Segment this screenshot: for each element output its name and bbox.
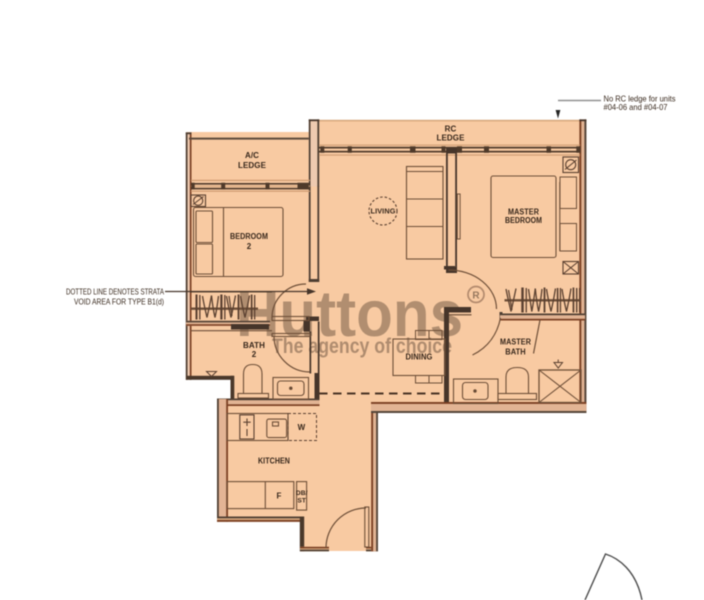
svg-text:DINING: DINING bbox=[406, 353, 433, 362]
svg-text:DB/: DB/ bbox=[296, 490, 308, 497]
svg-text:R: R bbox=[472, 291, 480, 302]
svg-text:2: 2 bbox=[247, 242, 252, 251]
svg-text:VOID AREA FOR TYPE B1(d): VOID AREA FOR TYPE B1(d) bbox=[74, 297, 164, 307]
svg-text:MASTER: MASTER bbox=[500, 337, 531, 346]
svg-text:RC: RC bbox=[445, 125, 457, 134]
svg-text:LEDGE: LEDGE bbox=[436, 134, 465, 143]
svg-text:F: F bbox=[277, 492, 282, 501]
svg-text:LEDGE: LEDGE bbox=[238, 161, 267, 170]
svg-text:BATH: BATH bbox=[505, 347, 526, 356]
svg-text:#04-06 and #04-07: #04-06 and #04-07 bbox=[604, 102, 668, 112]
svg-text:LIVING: LIVING bbox=[371, 209, 396, 216]
svg-text:ST: ST bbox=[297, 498, 306, 505]
svg-text:W: W bbox=[298, 423, 306, 432]
svg-text:BEDROOM: BEDROOM bbox=[505, 216, 542, 225]
svg-text:2: 2 bbox=[252, 350, 257, 359]
svg-text:DOTTED LINE DENOTES STRATA: DOTTED LINE DENOTES STRATA bbox=[66, 287, 164, 297]
svg-text:BEDROOM: BEDROOM bbox=[230, 232, 268, 241]
svg-text:A/C: A/C bbox=[245, 151, 259, 160]
svg-text:KITCHEN: KITCHEN bbox=[258, 457, 290, 466]
svg-text:BATH: BATH bbox=[243, 341, 265, 350]
